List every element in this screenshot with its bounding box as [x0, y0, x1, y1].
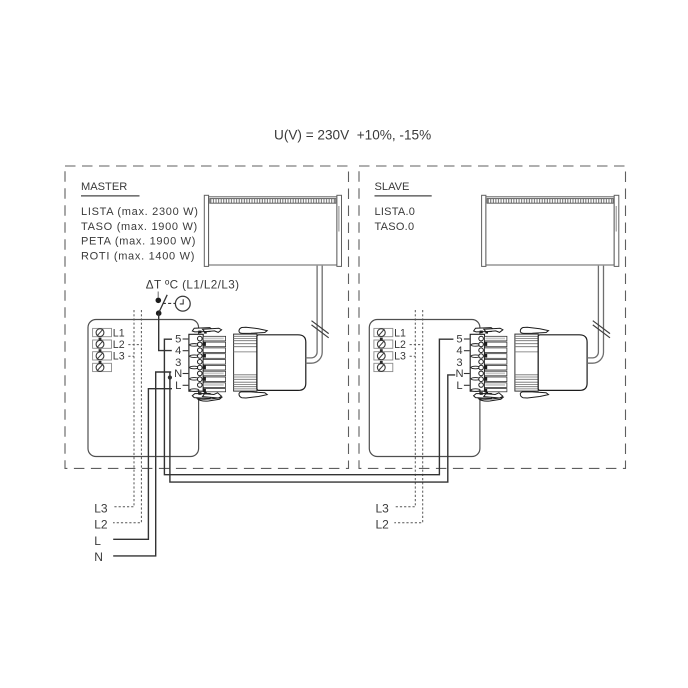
svg-text:PETA (max. 1900 W): PETA (max. 1900 W) — [81, 236, 196, 248]
svg-text:SLAVE: SLAVE — [375, 181, 410, 193]
svg-text:L: L — [94, 534, 101, 548]
svg-text:ΔT ºC (L1/L2/L3): ΔT ºC (L1/L2/L3) — [146, 278, 240, 291]
svg-text:TASO.0: TASO.0 — [375, 221, 415, 233]
svg-text:LISTA (max. 2300 W): LISTA (max. 2300 W) — [81, 206, 199, 218]
svg-text:LISTA.0: LISTA.0 — [375, 206, 416, 218]
svg-text:U(V) = 230V +10%, -15%: U(V) = 230V +10%, -15% — [274, 127, 431, 142]
svg-text:MASTER: MASTER — [81, 181, 127, 193]
svg-text:ROTI (max. 1400 W): ROTI (max. 1400 W) — [81, 251, 195, 263]
svg-text:N: N — [94, 550, 103, 564]
svg-text:TASO (max. 1900 W): TASO (max. 1900 W) — [81, 221, 198, 233]
